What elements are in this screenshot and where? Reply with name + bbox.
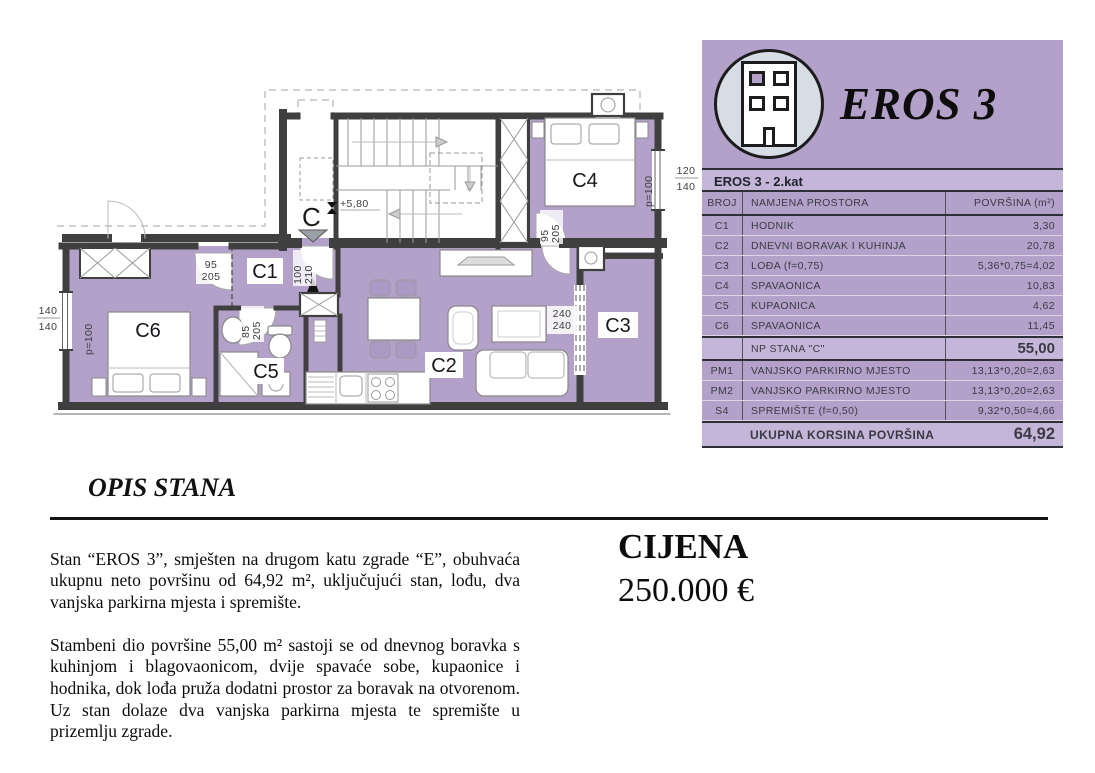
cell-broj: C5 <box>702 300 742 312</box>
building-icon <box>714 49 824 159</box>
dim-parapet-right: p=100 <box>643 176 655 208</box>
table-row: C3 LOĐA (f=0,75) 5,36*0,75=4,02 <box>702 256 1063 276</box>
table-header-row: BROJ NAMJENA PROSTORA POVRŠINA (m²) <box>702 192 1063 216</box>
building-glyph <box>741 61 797 147</box>
cell-povrsina: 4,62 <box>945 296 1063 315</box>
dim-win-left-a: 140 <box>39 305 58 317</box>
header-namjena: NAMJENA PROSTORA <box>742 192 945 214</box>
cell-broj: PM2 <box>702 385 742 397</box>
cell-namjena: KUPAONICA <box>742 296 945 315</box>
cell-povrsina: 5,36*0,75=4,02 <box>945 256 1063 275</box>
description-paragraph-1: Stan “EROS 3”, smješten na drugom katu z… <box>50 549 520 614</box>
dim-c1-door-w: 95 <box>205 259 217 271</box>
description-paragraph-2: Stambeni dio površine 55,00 m² sastoji s… <box>50 635 520 743</box>
building-window <box>773 96 789 111</box>
cell-namjena: VANJSKO PARKIRNO MJESTO <box>742 381 945 400</box>
cell-povrsina: 3,30 <box>945 216 1063 235</box>
cell-namjena: LOĐA (f=0,75) <box>742 256 945 275</box>
total-value: 64,92 <box>945 423 1063 446</box>
cell-povrsina: 13,13*0,20=2,63 <box>945 361 1063 380</box>
cell-namjena: DNEVNI BORAVAK I KUHINJA <box>742 236 945 255</box>
dim-parapet-left: p=100 <box>83 324 95 356</box>
table-row: PM1 VANJSKO PARKIRNO MJESTO 13,13*0,20=2… <box>702 361 1063 381</box>
cell-namjena: SPAVAONICA <box>742 316 945 335</box>
table-row: C2 DNEVNI BORAVAK I KUHINJA 20,78 <box>702 236 1063 256</box>
cell-namjena: SPAVAONICA <box>742 276 945 295</box>
building-window-highlighted <box>749 71 765 86</box>
dim-c3-slider-w: 240 <box>553 308 572 320</box>
info-panel: EROS 3 EROS 3 - 2.kat BROJ NAMJENA PROST… <box>702 40 1063 438</box>
dim-win-right-b: 140 <box>677 181 696 193</box>
table-row: C1 HODNIK 3,30 <box>702 216 1063 236</box>
floor-subtitle: EROS 3 - 2.kat <box>702 168 1063 192</box>
cell-broj: C6 <box>702 320 742 332</box>
brand-title: EROS 3 <box>840 78 997 130</box>
dim-win-left-b: 140 <box>39 321 58 333</box>
building-door <box>763 127 775 145</box>
description-heading: OPIS STANA <box>88 473 236 503</box>
price-value: 250.000 € <box>618 572 754 610</box>
cell-povrsina: 11,45 <box>945 316 1063 335</box>
dim-c1-door-h: 205 <box>202 271 221 283</box>
building-window <box>773 71 789 86</box>
subtotal-row: NP STANA "C" 55,00 <box>702 336 1063 361</box>
table-row: PM2 VANJSKO PARKIRNO MJESTO 13,13*0,20=2… <box>702 381 1063 401</box>
cell-broj: C4 <box>702 280 742 292</box>
dim-entry-door-h: 210 <box>303 265 315 284</box>
cell-povrsina: 20,78 <box>945 236 1063 255</box>
subtotal-value: 55,00 <box>945 338 1063 359</box>
level-label: +5,80 <box>340 198 369 210</box>
staircase <box>300 118 498 243</box>
total-label: UKUPNA KORSINA POVRŠINA <box>742 423 945 446</box>
header-broj: BROJ <box>702 197 742 209</box>
dim-c3-slider-h: 240 <box>553 320 572 332</box>
cell-broj: S4 <box>702 405 742 417</box>
cell-broj: PM1 <box>702 365 742 377</box>
label-c6: C6 <box>135 320 161 342</box>
cell-povrsina: 13,13*0,20=2,63 <box>945 381 1063 400</box>
table-row: S4 SPREMIŠTE (f=0,50) 9,32*0,50=4,66 <box>702 401 1063 421</box>
cell-povrsina: 9,32*0,50=4,66 <box>945 401 1063 420</box>
cell-broj: C3 <box>702 260 742 272</box>
table-row: C5 KUPAONICA 4,62 <box>702 296 1063 316</box>
flyer-page: C +5,80 <box>0 0 1095 773</box>
dim-c5-door-h: 205 <box>251 321 263 340</box>
label-c1: C1 <box>252 261 278 283</box>
cell-namjena: HODNIK <box>742 216 945 235</box>
cell-povrsina: 10,83 <box>945 276 1063 295</box>
dim-c4-door-h: 205 <box>550 224 562 243</box>
cell-broj: C1 <box>702 220 742 232</box>
header-povrsina: POVRŠINA (m²) <box>945 192 1063 214</box>
subtotal-label: NP STANA "C" <box>742 338 945 359</box>
floor-plan: C +5,80 <box>0 0 700 455</box>
label-c2: C2 <box>431 355 457 377</box>
table-row: C4 SPAVAONICA 10,83 <box>702 276 1063 296</box>
logo-row: EROS 3 <box>702 40 1063 168</box>
label-c3: C3 <box>605 315 631 337</box>
total-row: UKUPNA KORSINA POVRŠINA 64,92 <box>702 421 1063 448</box>
cell-broj: C2 <box>702 240 742 252</box>
cell-namjena: SPREMIŠTE (f=0,50) <box>742 401 945 420</box>
stair-arrows <box>389 137 475 219</box>
entrance-letter: C <box>302 202 321 232</box>
divider-rule <box>50 517 1048 520</box>
price-label: CIJENA <box>618 527 748 567</box>
building-window <box>749 96 765 111</box>
dim-win-right-a: 120 <box>677 165 696 177</box>
table-row: C6 SPAVAONICA 11,45 <box>702 316 1063 336</box>
label-c5: C5 <box>253 361 279 383</box>
cell-namjena: VANJSKO PARKIRNO MJESTO <box>742 361 945 380</box>
label-c4: C4 <box>572 170 598 192</box>
window-left <box>59 292 73 350</box>
